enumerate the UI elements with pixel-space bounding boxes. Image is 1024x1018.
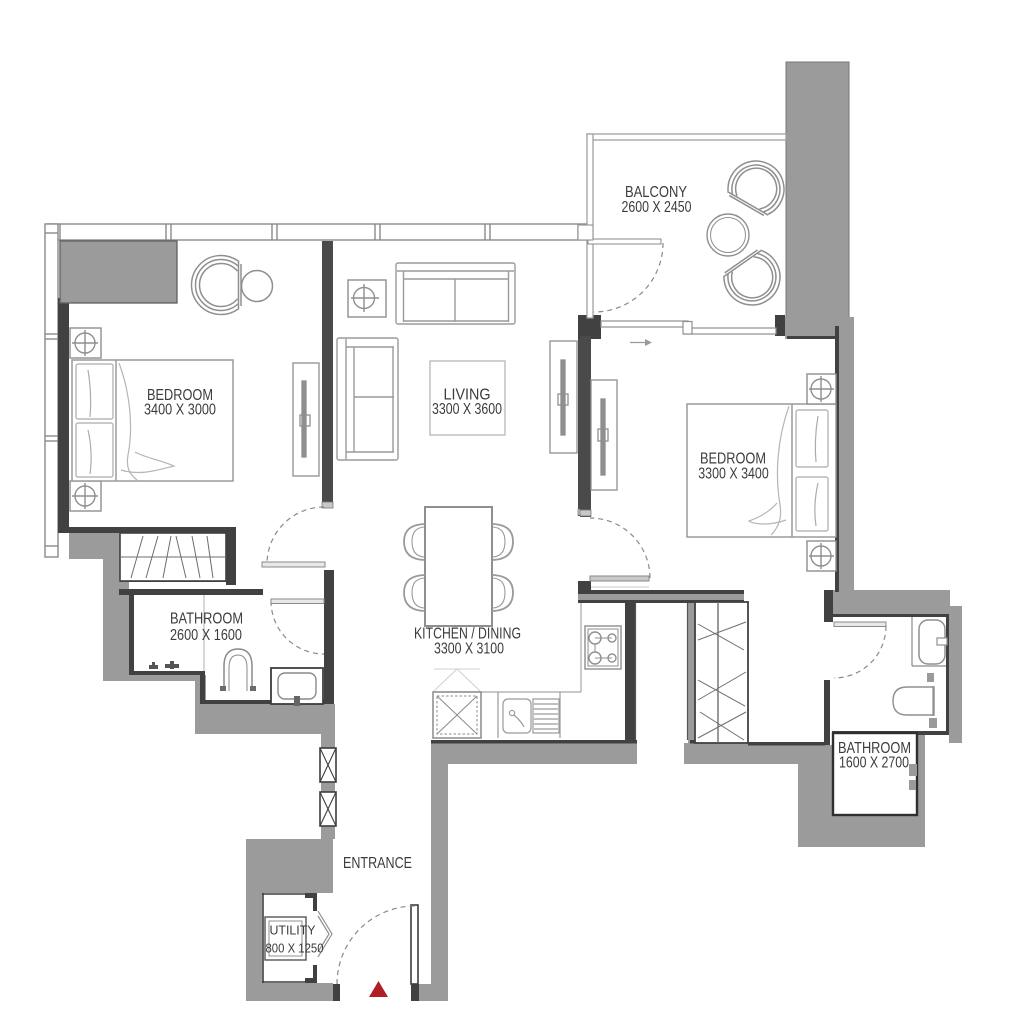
svg-text:1600 X 2700: 1600 X 2700 <box>839 755 909 772</box>
svg-text:BATHROOM: BATHROOM <box>170 611 243 628</box>
svg-text:UTILITY: UTILITY <box>270 924 317 938</box>
svg-text:2600 X 1600: 2600 X 1600 <box>170 627 242 644</box>
svg-text:3300 X 3400: 3300 X 3400 <box>698 466 769 483</box>
svg-text:ENTRANCE: ENTRANCE <box>343 855 412 872</box>
svg-text:3300 X 3600: 3300 X 3600 <box>432 401 502 418</box>
svg-text:3300 X 3100: 3300 X 3100 <box>434 641 504 658</box>
svg-text:3400 X 3000: 3400 X 3000 <box>144 402 216 419</box>
svg-text:800 X 1250: 800 X 1250 <box>266 942 324 956</box>
svg-text:2600 X 2450: 2600 X 2450 <box>622 199 692 216</box>
